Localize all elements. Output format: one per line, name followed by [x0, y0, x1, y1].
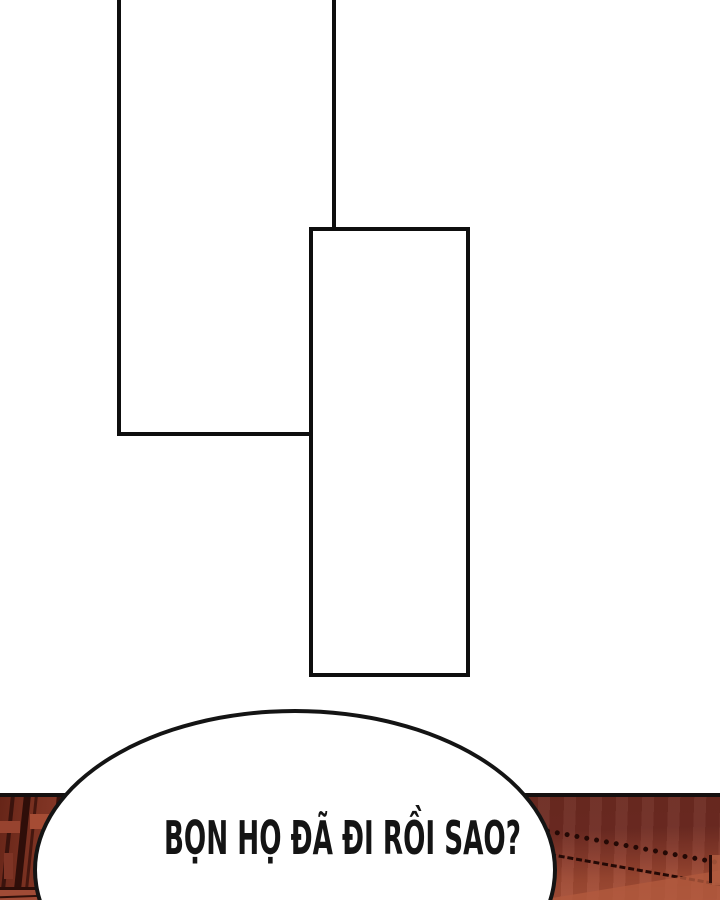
comic-page: BỌN HỌ ĐÃ ĐI RỒI SAO?	[0, 0, 720, 900]
wood-highlight-patch	[4, 853, 13, 879]
roof-post-highlight	[712, 855, 720, 885]
speech-bubble: BỌN HỌ ĐÃ ĐI RỒI SAO?	[33, 709, 557, 900]
panel-rect-center	[309, 227, 470, 677]
wood-highlight-patch	[0, 821, 20, 833]
panel-rect-top-left	[117, 0, 336, 436]
speech-bubble-text: BỌN HỌ ĐÃ ĐI RỒI SAO?	[164, 815, 458, 861]
